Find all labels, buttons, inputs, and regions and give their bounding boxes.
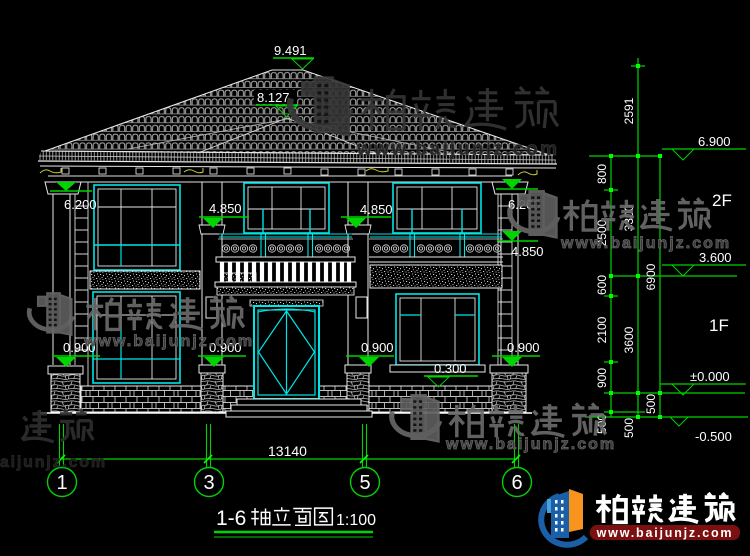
svg-text:4.850: 4.850: [511, 244, 544, 259]
svg-text:6: 6: [511, 472, 522, 494]
svg-text:www.baijunjz.com: www.baijunjz.com: [0, 454, 107, 471]
svg-text:0.300: 0.300: [434, 361, 467, 376]
svg-text:3.600: 3.600: [699, 250, 732, 265]
svg-text:800: 800: [595, 164, 609, 184]
svg-text:www.baijunjz.com: www.baijunjz.com: [596, 526, 734, 540]
svg-text:4.850: 4.850: [360, 202, 393, 217]
svg-text:600: 600: [595, 275, 609, 295]
svg-text:9.491: 9.491: [274, 43, 307, 58]
svg-text:2100: 2100: [595, 316, 609, 343]
svg-text:900: 900: [595, 368, 609, 388]
svg-text:±0.000: ±0.000: [690, 369, 730, 384]
svg-text:3600: 3600: [622, 326, 636, 353]
svg-text:1-6: 1-6: [216, 507, 246, 530]
svg-text:8.127: 8.127: [257, 90, 290, 105]
svg-text:-0.500: -0.500: [695, 429, 732, 444]
svg-text:www.baijunjz.com: www.baijunjz.com: [445, 436, 616, 453]
svg-text:1F: 1F: [709, 316, 729, 335]
svg-text:3: 3: [203, 472, 214, 494]
svg-text:0.900: 0.900: [507, 340, 540, 355]
svg-text:4.850: 4.850: [209, 201, 242, 216]
svg-text:www.baijunjz.com: www.baijunjz.com: [356, 139, 559, 160]
svg-text:6900: 6900: [644, 263, 658, 290]
svg-text:www.baijunjz.com: www.baijunjz.com: [560, 235, 731, 252]
svg-text:2F: 2F: [712, 191, 732, 210]
svg-text:1: 1: [56, 472, 67, 494]
svg-text:500: 500: [622, 418, 636, 438]
svg-text:1:100: 1:100: [336, 512, 376, 529]
svg-text:500: 500: [644, 394, 658, 414]
svg-text:6.200: 6.200: [64, 197, 97, 212]
svg-text:2591: 2591: [622, 97, 636, 124]
svg-text:13140: 13140: [268, 443, 307, 459]
svg-text:6.900: 6.900: [698, 134, 731, 149]
svg-text:0.900: 0.900: [361, 340, 394, 355]
svg-text:5: 5: [359, 472, 370, 494]
svg-text:www.baijunjz.com: www.baijunjz.com: [83, 333, 254, 350]
